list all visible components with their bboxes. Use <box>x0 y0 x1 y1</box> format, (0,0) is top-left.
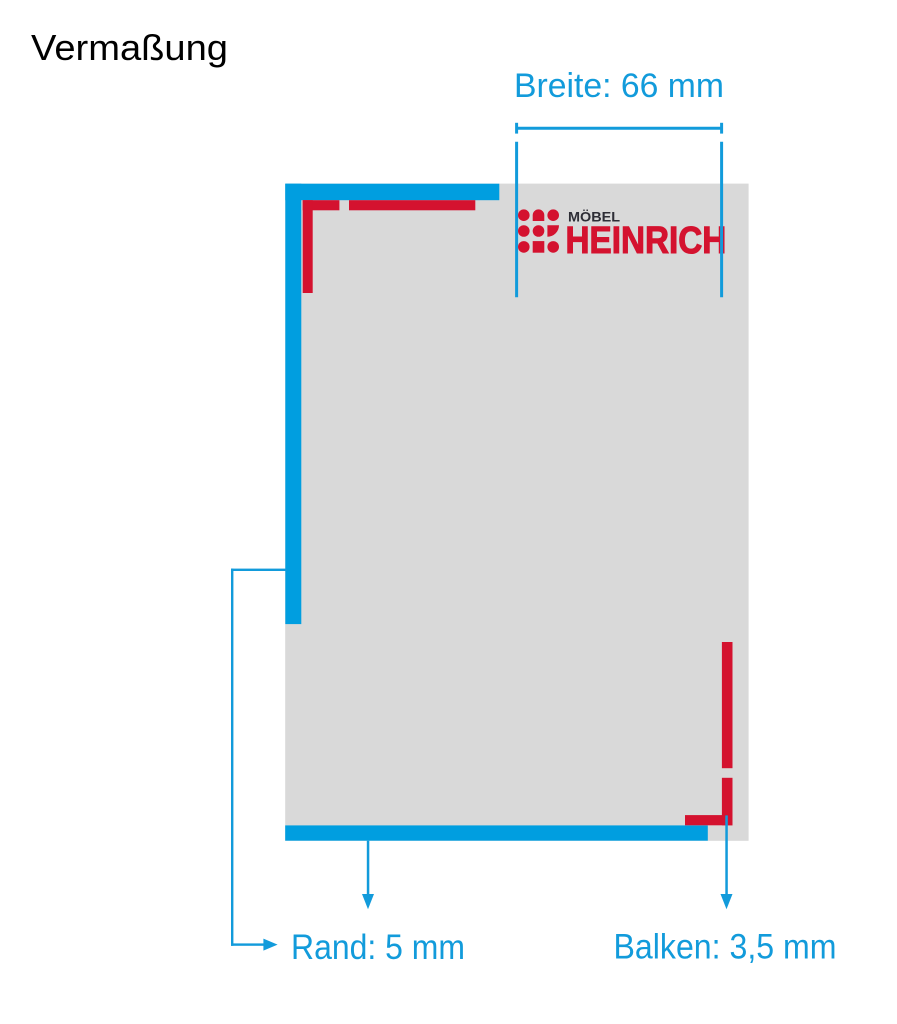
svg-text:Breite: 66 mm: Breite: 66 mm <box>514 67 724 105</box>
svg-text:Vermaßung: Vermaßung <box>31 27 228 68</box>
svg-text:HEINRICH: HEINRICH <box>566 219 727 262</box>
svg-text:Rand: 5 mm: Rand: 5 mm <box>291 928 465 967</box>
svg-text:Balken: 3,5 mm: Balken: 3,5 mm <box>614 928 837 967</box>
